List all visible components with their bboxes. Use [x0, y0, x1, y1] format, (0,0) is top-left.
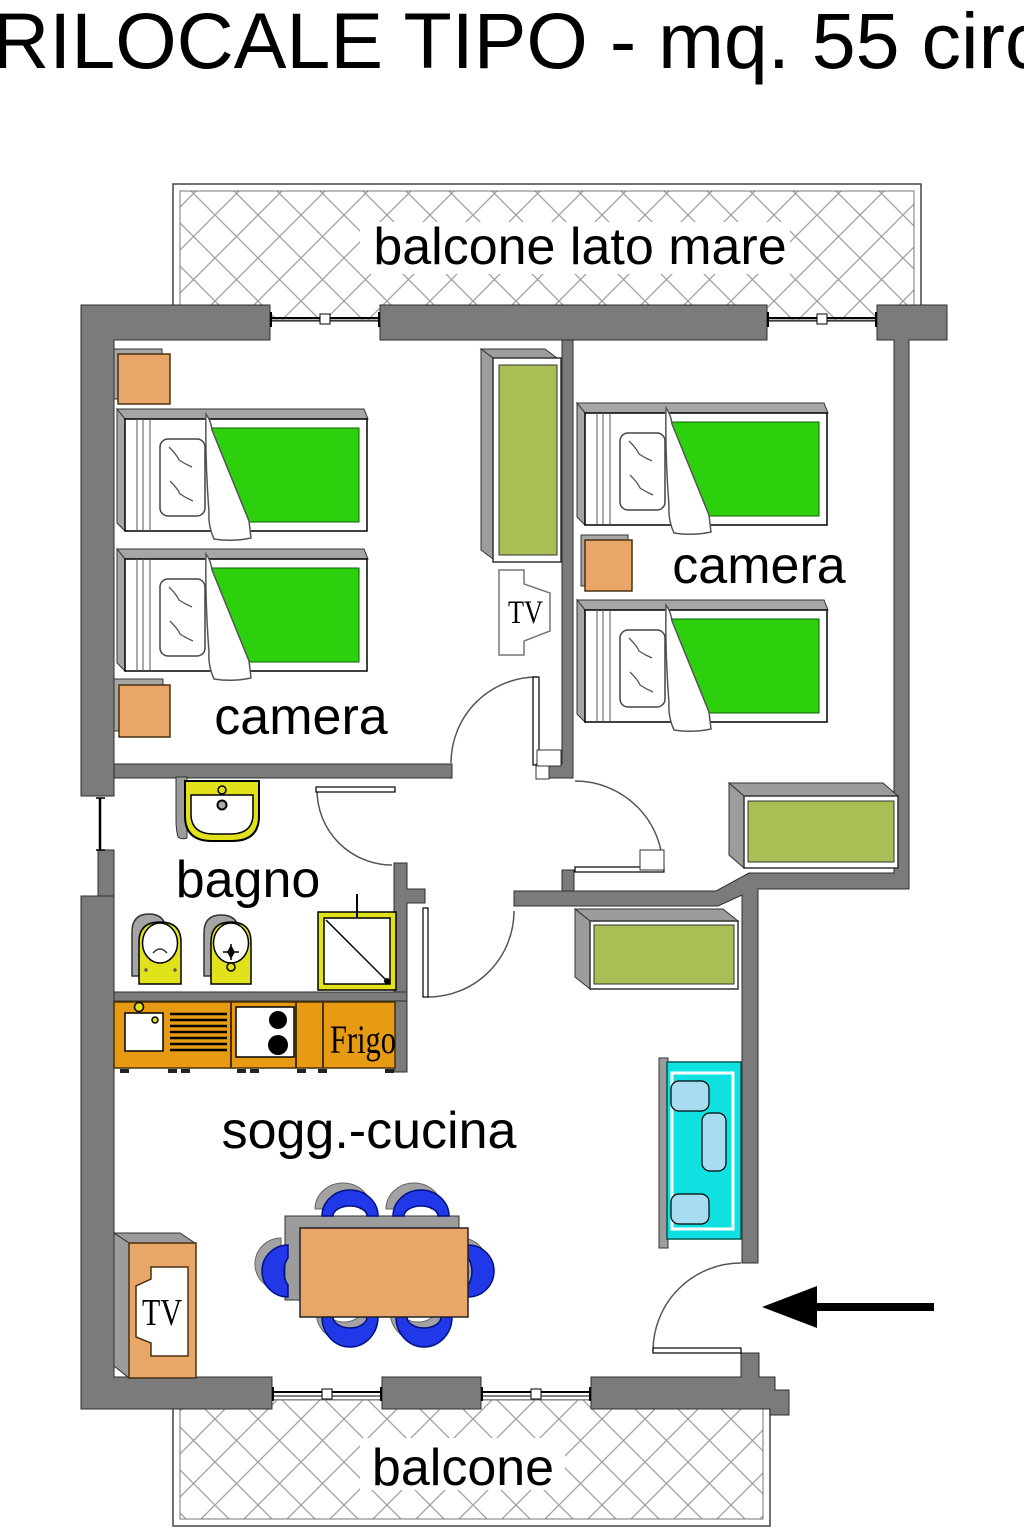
svg-text:TV: TV	[508, 595, 543, 631]
svg-text:camera: camera	[214, 688, 387, 746]
svg-text:Frigo: Frigo	[330, 1017, 396, 1062]
svg-text:TRILOCALE TIPO - mq. 55 circa: TRILOCALE TIPO - mq. 55 circa	[0, 0, 1024, 85]
svg-text:bagno: bagno	[176, 851, 321, 909]
svg-text:TV: TV	[142, 1292, 182, 1334]
svg-text:sogg.-cucina: sogg.-cucina	[222, 1102, 517, 1160]
svg-text:balcone: balcone	[372, 1439, 554, 1497]
svg-text:camera: camera	[672, 537, 845, 595]
svg-text:balcone lato mare: balcone lato mare	[373, 218, 786, 276]
